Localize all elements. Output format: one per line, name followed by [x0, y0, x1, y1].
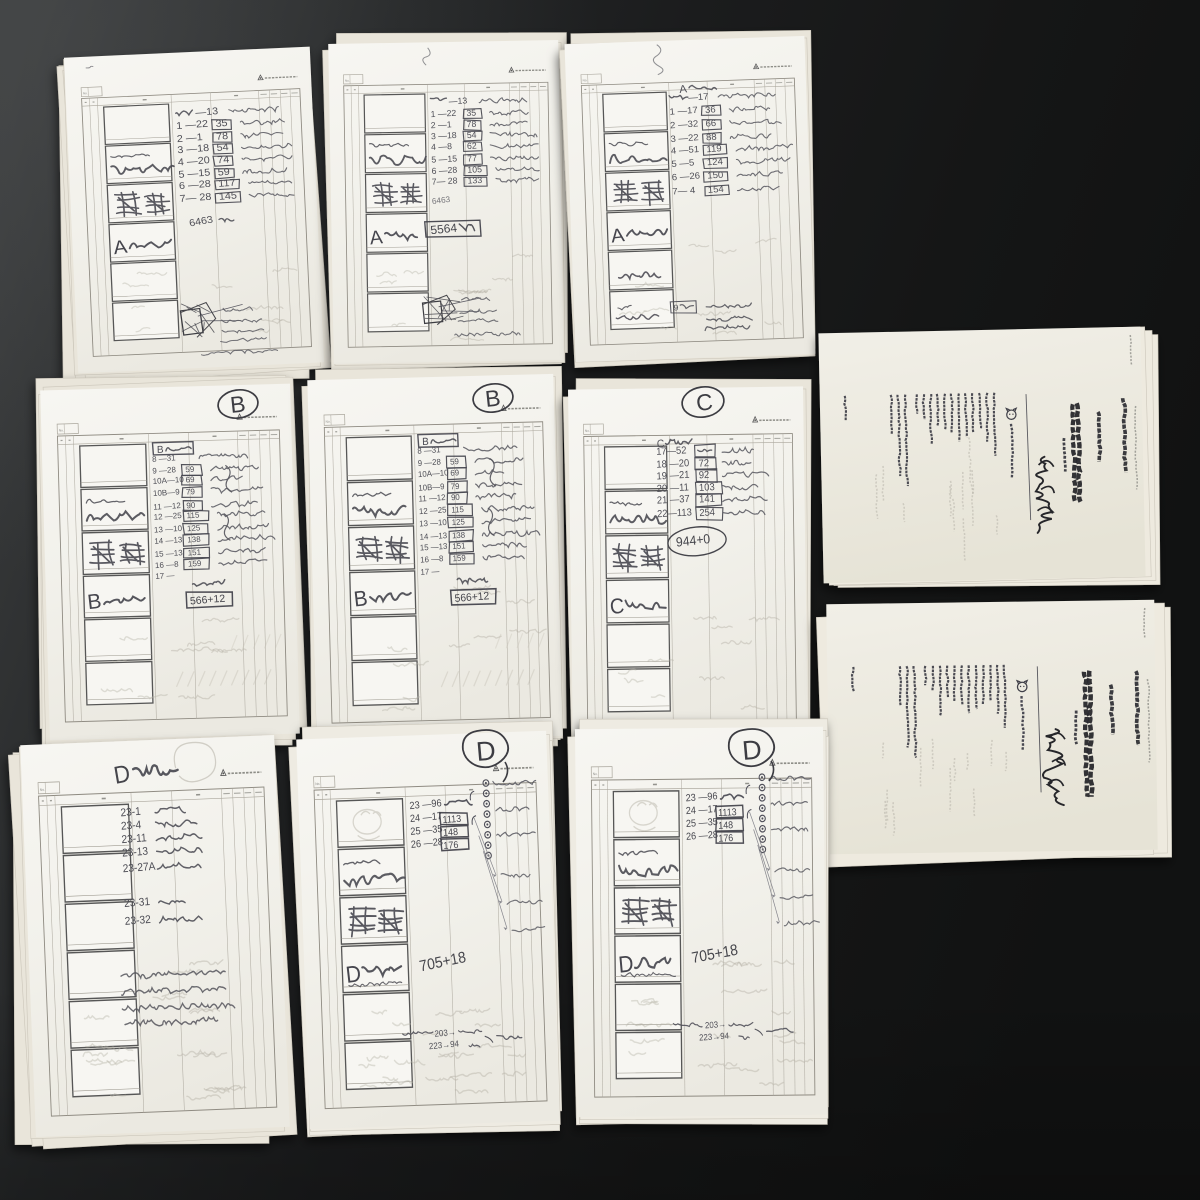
svg-text:A: A [369, 227, 384, 249]
svg-text:2 —1: 2 —1 [430, 119, 452, 130]
svg-text:223→94: 223→94 [699, 1030, 730, 1043]
svg-text:138: 138 [452, 530, 466, 540]
svg-text:C: C [609, 594, 626, 619]
svg-text:No.: No. [345, 79, 350, 83]
svg-text:23-31: 23-31 [124, 896, 151, 911]
svg-text:No.: No. [583, 78, 588, 82]
svg-text:88: 88 [706, 132, 717, 142]
svg-text:No.: No. [593, 772, 598, 776]
svg-text:13 —10: 13 —10 [419, 518, 448, 529]
svg-text:10B—9: 10B—9 [153, 487, 181, 498]
svg-text:119: 119 [706, 143, 722, 154]
svg-text:B: B [86, 590, 103, 614]
svg-text:79: 79 [450, 482, 460, 492]
svg-text:4 —8: 4 —8 [431, 141, 453, 152]
svg-text:254: 254 [699, 507, 716, 519]
svg-text:No.: No. [83, 91, 88, 95]
svg-text:74: 74 [217, 155, 230, 166]
svg-text:115: 115 [186, 510, 200, 520]
svg-text:23-32: 23-32 [124, 913, 151, 928]
svg-text:66: 66 [705, 118, 716, 128]
svg-text:159: 159 [452, 553, 466, 563]
svg-text:5 —15: 5 —15 [431, 153, 457, 164]
svg-text:17—52: 17—52 [656, 445, 687, 458]
svg-text:13 —10: 13 —10 [154, 524, 183, 535]
svg-text:125: 125 [187, 523, 201, 533]
svg-text:7— 28: 7— 28 [431, 175, 457, 186]
svg-text:23-27A: 23-27A [122, 860, 156, 875]
svg-text:54: 54 [467, 130, 477, 140]
svg-text:23 —96: 23 —96 [685, 791, 718, 805]
svg-text:8 —31: 8 —31 [417, 445, 441, 456]
svg-text:14 —13: 14 —13 [154, 535, 183, 546]
svg-text:154: 154 [707, 184, 724, 195]
svg-text:11 —12: 11 —12 [153, 501, 181, 512]
svg-text:23-13: 23-13 [122, 845, 149, 860]
svg-text:78: 78 [466, 119, 476, 129]
svg-text:203→: 203→ [434, 1026, 456, 1038]
svg-text:—17: —17 [688, 92, 709, 103]
svg-text:105: 105 [467, 164, 482, 175]
svg-text:23-4: 23-4 [121, 819, 142, 833]
svg-text:145: 145 [219, 191, 238, 203]
svg-text:1113: 1113 [718, 807, 737, 819]
svg-text:12 —25: 12 —25 [153, 511, 182, 522]
svg-text:151: 151 [452, 541, 466, 551]
svg-text:9 —28: 9 —28 [152, 465, 177, 475]
svg-text:No.: No. [326, 420, 331, 424]
svg-text:24 —17: 24 —17 [685, 804, 718, 818]
svg-text:6 —26: 6 —26 [672, 171, 701, 183]
svg-text:D: D [741, 734, 763, 766]
svg-text:117: 117 [218, 178, 236, 190]
svg-text:10B—9: 10B—9 [418, 482, 445, 493]
svg-text:17 —: 17 — [155, 571, 175, 581]
svg-text:No.: No. [315, 782, 320, 786]
svg-text:21 —37: 21 —37 [657, 494, 690, 507]
svg-text:19 —21: 19 —21 [656, 469, 689, 482]
svg-text:6 —28: 6 —28 [431, 165, 457, 176]
svg-text:16 —8: 16 —8 [155, 560, 180, 570]
svg-text:7— 4: 7— 4 [672, 185, 696, 196]
svg-text:—13: —13 [448, 95, 467, 106]
svg-text:5 —5: 5 —5 [671, 158, 695, 169]
svg-text:35: 35 [466, 108, 476, 118]
svg-text:138: 138 [187, 535, 201, 545]
svg-text:1 —17: 1 —17 [669, 105, 698, 117]
svg-text:79: 79 [186, 487, 196, 497]
svg-text:35: 35 [215, 118, 228, 129]
svg-text:62: 62 [467, 140, 477, 150]
svg-text:92: 92 [699, 470, 710, 482]
svg-text:90: 90 [451, 493, 461, 503]
svg-text:B: B [353, 587, 369, 612]
svg-text:22—113: 22—113 [657, 507, 693, 520]
svg-text:4 —51: 4 —51 [671, 144, 700, 156]
svg-text:176: 176 [718, 833, 733, 845]
svg-text:9 —28: 9 —28 [417, 457, 441, 468]
svg-text:141: 141 [699, 493, 715, 505]
svg-text:B: B [229, 391, 247, 418]
svg-text:16 —8: 16 —8 [420, 554, 444, 565]
svg-text:15 —13: 15 —13 [154, 548, 183, 559]
svg-text:10A—10: 10A—10 [418, 468, 450, 479]
svg-text:176: 176 [443, 839, 459, 852]
svg-text:90: 90 [186, 501, 196, 511]
svg-text:59: 59 [185, 465, 195, 475]
svg-text:78: 78 [216, 131, 229, 142]
svg-text:9: 9 [673, 303, 678, 313]
svg-text:No.: No. [59, 428, 64, 432]
svg-text:26 —28: 26 —28 [686, 829, 719, 843]
svg-text:D: D [617, 950, 634, 978]
svg-text:25 —35: 25 —35 [686, 816, 719, 830]
svg-text:77: 77 [467, 153, 477, 163]
svg-text:2 —32: 2 —32 [670, 119, 699, 131]
svg-text:151: 151 [187, 548, 201, 558]
svg-text:69: 69 [185, 475, 195, 485]
svg-text:159: 159 [188, 559, 202, 569]
svg-text:3 —18: 3 —18 [431, 130, 457, 141]
svg-text:No.: No. [40, 788, 45, 792]
svg-text:D: D [475, 735, 497, 767]
svg-text:17 —: 17 — [420, 567, 440, 577]
svg-text:8 —31: 8 —31 [152, 453, 177, 463]
svg-text:133: 133 [467, 175, 482, 186]
svg-text:12 —25: 12 —25 [419, 505, 448, 516]
svg-text:148: 148 [718, 820, 733, 832]
svg-text:69: 69 [450, 468, 460, 478]
svg-text:—13: —13 [195, 106, 219, 118]
svg-text:1 —22: 1 —22 [430, 108, 456, 119]
svg-text:150: 150 [707, 170, 724, 181]
svg-text:23-1: 23-1 [120, 805, 141, 819]
svg-text:1113: 1113 [442, 813, 461, 826]
svg-text:125: 125 [451, 517, 465, 527]
svg-text:103: 103 [699, 482, 716, 494]
svg-text:115: 115 [451, 505, 465, 515]
svg-text:B: B [484, 385, 502, 412]
svg-text:11 —12: 11 —12 [418, 493, 446, 504]
svg-text:72: 72 [698, 458, 709, 470]
svg-text:No.: No. [585, 429, 590, 433]
svg-text:D: D [344, 960, 362, 988]
svg-text:59: 59 [217, 167, 230, 178]
svg-text:59: 59 [450, 457, 460, 467]
svg-text:36: 36 [705, 105, 716, 115]
svg-text:5564: 5564 [430, 221, 458, 238]
svg-text:C: C [695, 388, 714, 416]
svg-text:23-11: 23-11 [121, 832, 147, 847]
svg-text:14 —13: 14 —13 [419, 531, 448, 542]
svg-text:3 —22: 3 —22 [670, 132, 699, 144]
svg-text:203→: 203→ [705, 1019, 727, 1031]
svg-text:15 —13: 15 —13 [420, 542, 449, 553]
svg-text:148: 148 [443, 827, 459, 840]
svg-text:54: 54 [216, 142, 229, 153]
svg-text:124: 124 [707, 156, 724, 167]
